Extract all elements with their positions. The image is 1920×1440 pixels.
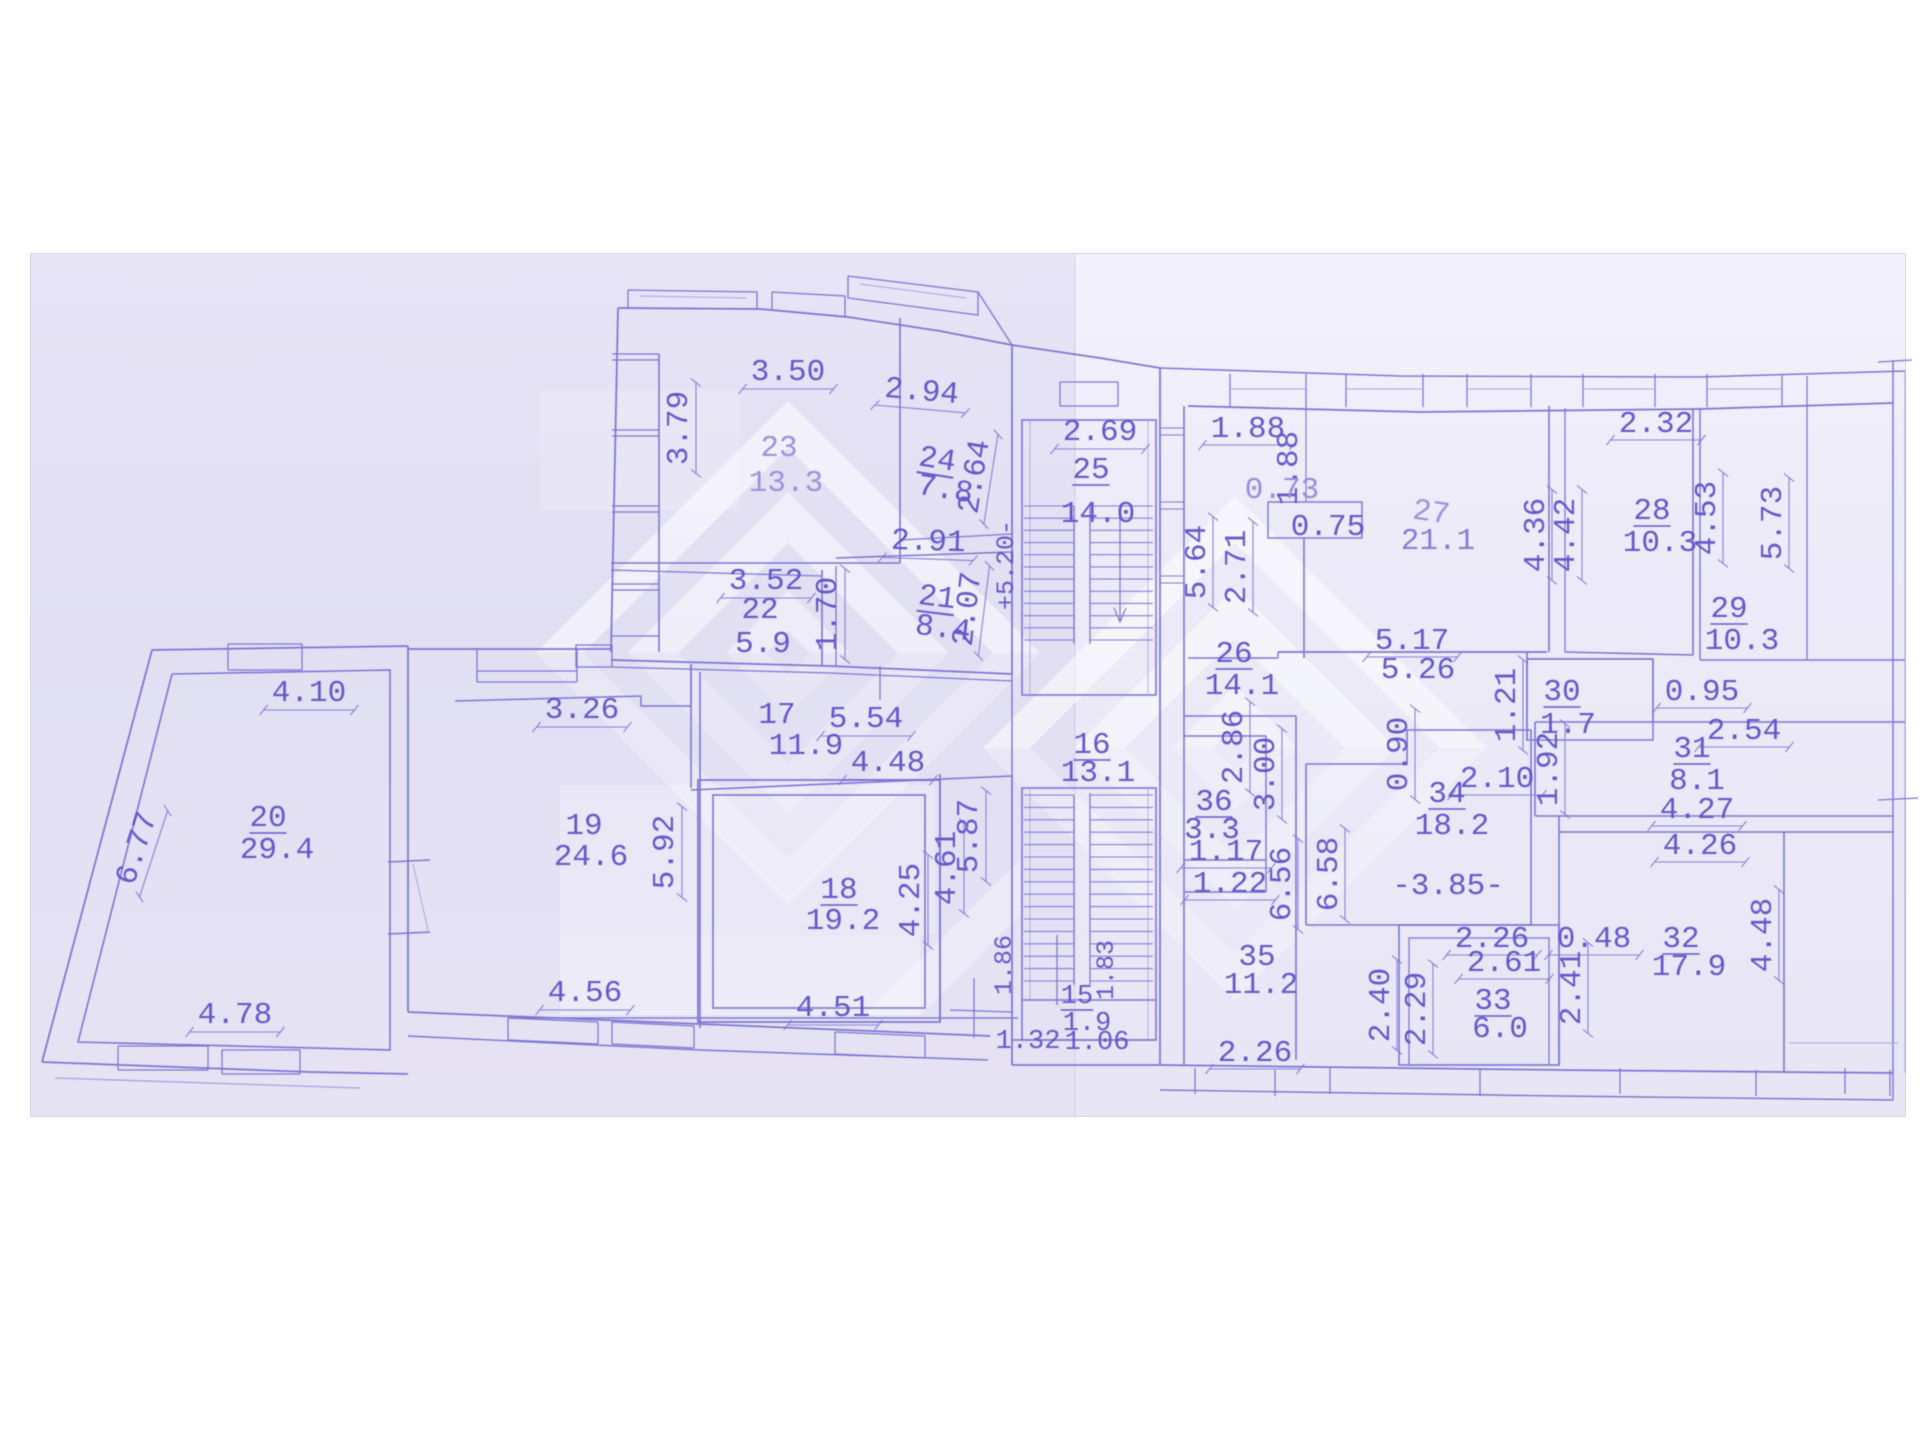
svg-text:4.53: 4.53 — [1690, 481, 1725, 555]
svg-text:24.6: 24.6 — [554, 840, 628, 875]
svg-text:22: 22 — [741, 593, 778, 628]
svg-text:1.32: 1.32 — [996, 1027, 1061, 1057]
svg-text:4.27: 4.27 — [1660, 793, 1734, 828]
svg-text:31: 31 — [1673, 732, 1710, 767]
svg-text:4.26: 4.26 — [1663, 829, 1737, 864]
svg-text:1.17: 1.17 — [1189, 835, 1263, 870]
svg-text:19.2: 19.2 — [806, 904, 880, 939]
svg-text:0.75: 0.75 — [1291, 510, 1365, 545]
svg-text:2.69: 2.69 — [1063, 415, 1137, 450]
svg-text:1.70: 1.70 — [811, 577, 846, 651]
svg-text:0.73: 0.73 — [1245, 473, 1319, 508]
svg-text:-3.85-: -3.85- — [1392, 869, 1504, 904]
svg-text:29.4: 29.4 — [240, 833, 314, 868]
svg-text:4.42: 4.42 — [1549, 498, 1584, 572]
svg-text:5.26: 5.26 — [1381, 653, 1455, 688]
svg-text:2.61: 2.61 — [1467, 946, 1541, 981]
svg-text:4.25: 4.25 — [894, 863, 929, 937]
svg-text:+5.20-: +5.20- — [992, 520, 1021, 610]
svg-text:4.51: 4.51 — [796, 991, 870, 1026]
svg-text:28: 28 — [1633, 494, 1670, 529]
svg-text:23: 23 — [760, 431, 797, 466]
svg-text:5.87: 5.87 — [952, 799, 987, 873]
svg-text:2.29: 2.29 — [1400, 972, 1435, 1046]
svg-text:3.79: 3.79 — [662, 391, 697, 465]
svg-text:2.32: 2.32 — [1619, 407, 1693, 442]
svg-text:4.56: 4.56 — [548, 976, 622, 1011]
svg-text:0.95: 0.95 — [1665, 675, 1739, 710]
svg-text:3.26: 3.26 — [545, 693, 619, 728]
svg-text:1.86: 1.86 — [990, 935, 1019, 995]
svg-text:18: 18 — [820, 873, 857, 908]
svg-text:10.3: 10.3 — [1705, 624, 1779, 659]
svg-text:14.1: 14.1 — [1205, 669, 1279, 704]
svg-text:19: 19 — [565, 809, 602, 844]
svg-text:21.1: 21.1 — [1401, 524, 1475, 559]
svg-text:10.3: 10.3 — [1623, 526, 1697, 561]
svg-text:2.86: 2.86 — [1217, 710, 1252, 784]
svg-text:4.10: 4.10 — [272, 676, 346, 711]
svg-text:13.3: 13.3 — [749, 466, 823, 501]
svg-text:25: 25 — [1072, 453, 1109, 488]
svg-text:17.9: 17.9 — [1652, 950, 1726, 985]
svg-text:6.58: 6.58 — [1312, 837, 1347, 911]
svg-text:6.0: 6.0 — [1472, 1012, 1528, 1047]
svg-text:1.92: 1.92 — [1532, 732, 1567, 806]
svg-text:18.2: 18.2 — [1415, 809, 1489, 844]
svg-text:4.78: 4.78 — [198, 998, 272, 1033]
svg-text:5.64: 5.64 — [1180, 525, 1215, 599]
svg-text:13.1: 13.1 — [1061, 756, 1135, 791]
svg-text:15: 15 — [1061, 982, 1093, 1012]
svg-text:17: 17 — [758, 698, 795, 733]
svg-text:20: 20 — [249, 801, 286, 836]
svg-text:2.40: 2.40 — [1364, 968, 1399, 1042]
svg-text:11.9: 11.9 — [769, 729, 843, 764]
svg-text:2.91: 2.91 — [890, 524, 966, 562]
svg-text:1.83: 1.83 — [1092, 940, 1121, 1000]
svg-text:2.54: 2.54 — [1707, 714, 1781, 749]
svg-text:2.10: 2.10 — [1460, 762, 1534, 797]
svg-text:29: 29 — [1710, 592, 1747, 627]
svg-text:1.22: 1.22 — [1193, 867, 1267, 902]
svg-text:26: 26 — [1215, 637, 1252, 672]
svg-text:2.71: 2.71 — [1220, 530, 1255, 604]
svg-text:5.9: 5.9 — [735, 627, 791, 662]
svg-text:4.48: 4.48 — [851, 746, 925, 781]
svg-text:6.56: 6.56 — [1265, 847, 1300, 921]
svg-text:5.92: 5.92 — [648, 815, 683, 889]
svg-text:5.73: 5.73 — [1756, 486, 1791, 560]
svg-text:14.0: 14.0 — [1061, 497, 1135, 532]
svg-text:2.26: 2.26 — [1218, 1036, 1292, 1071]
svg-text:0.90: 0.90 — [1382, 717, 1417, 791]
svg-text:11.2: 11.2 — [1224, 968, 1298, 1003]
svg-text:1.06: 1.06 — [1065, 1028, 1130, 1058]
svg-text:1.21: 1.21 — [1490, 668, 1525, 742]
svg-text:4.48: 4.48 — [1746, 898, 1781, 972]
svg-text:30: 30 — [1543, 675, 1580, 710]
svg-text:2.41: 2.41 — [1555, 951, 1590, 1025]
svg-text:3.00: 3.00 — [1249, 737, 1284, 811]
svg-text:3.50: 3.50 — [751, 355, 825, 390]
svg-text:34: 34 — [1428, 777, 1465, 812]
